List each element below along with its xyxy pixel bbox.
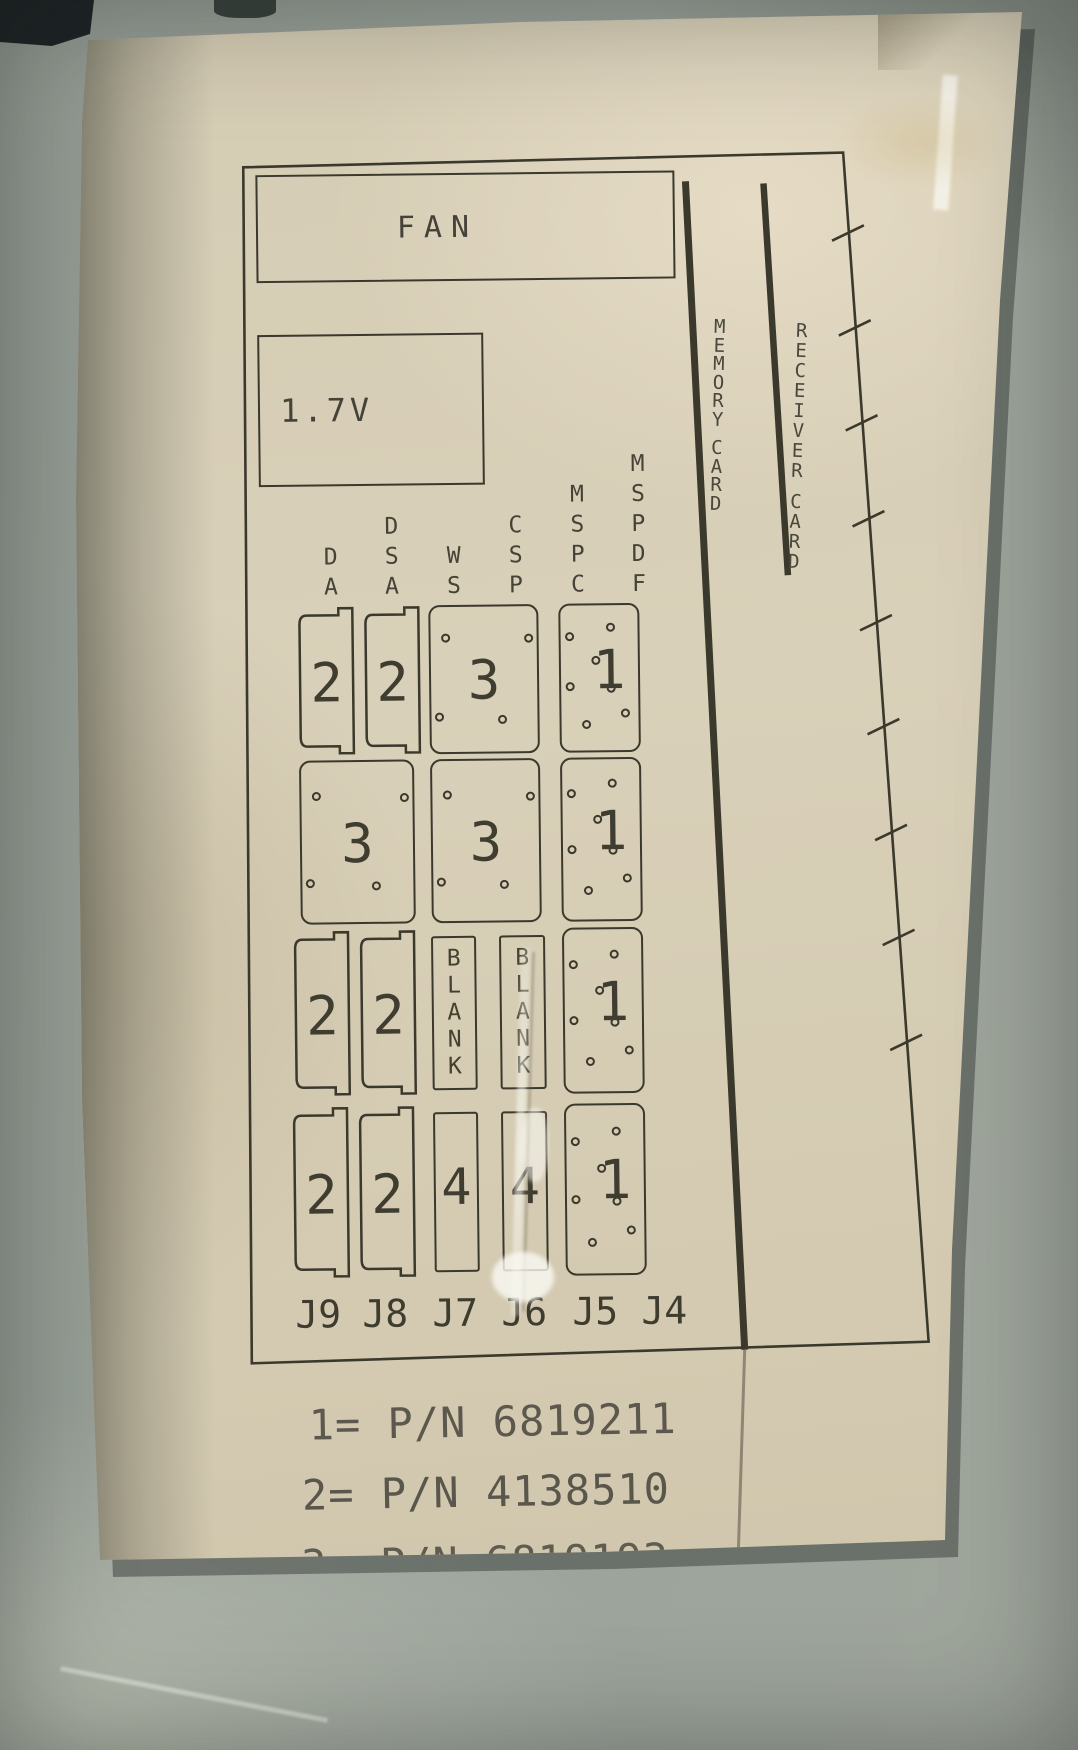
card-slot-J9-row4: 2 (292, 1106, 351, 1279)
slot-part-key: 1 (594, 804, 627, 858)
pin-dot (442, 791, 451, 800)
slot-part-key: 4 (441, 1162, 472, 1212)
stacked-letter: A (379, 572, 405, 602)
card-slot-J8-row1: 2 (363, 605, 422, 755)
pin-dot (498, 715, 507, 724)
stacked-letter: R (790, 321, 813, 342)
stacked-letter: M (709, 318, 731, 337)
pin-dot (621, 709, 630, 718)
memory-card-label: MEMORYCARD (704, 318, 731, 514)
stacked-letter: R (786, 461, 809, 482)
slot-part-key: 3 (468, 653, 501, 707)
paper-stain (830, 95, 1010, 190)
pin-dot (588, 1238, 597, 1247)
stacked-letter: M (708, 355, 730, 374)
stacked-letter: E (788, 381, 811, 402)
pin-dot (565, 683, 574, 692)
stacked-letter: A (447, 999, 461, 1026)
pin-dot (606, 622, 615, 631)
slot-part-key: 2 (306, 990, 339, 1044)
pin-dot (626, 1226, 635, 1235)
slot-part-key: 2 (372, 989, 405, 1043)
legend-line-1: 1= P/N 6819211 (308, 1398, 677, 1447)
stacked-letter: D (625, 539, 651, 569)
stacked-letter: W (441, 541, 467, 571)
pin-dot (435, 712, 444, 721)
stacked-letter: S (441, 571, 467, 601)
photo-background: FAN 1.7V MEMORYCARD RECEIVERCARD DADSAWS… (0, 0, 1078, 1750)
slot-part-key: 1 (596, 975, 629, 1029)
pin-dot (611, 1126, 620, 1135)
stacked-letter: N (448, 1026, 462, 1053)
stacked-letter: M (564, 479, 590, 509)
column-labels: DADSAWSCSPMSPCMSPDF (0, 0, 1069, 6)
stacked-letter: S (564, 509, 590, 539)
pin-dot (372, 882, 381, 891)
stacked-letter: C (789, 361, 812, 382)
legend-line-2: 2= P/N 4138510 (302, 1468, 671, 1517)
stacked-letter: S (503, 540, 529, 570)
paper-fold (878, 10, 978, 70)
stacked-letter: R (707, 392, 729, 411)
card-slot-J7J6-row2: 3 (430, 758, 542, 923)
pin-dot (441, 633, 450, 642)
pin-dot (524, 634, 533, 643)
connector-label-J5: J5 (572, 1289, 618, 1334)
card-slot-J7-row3: BLANK (431, 936, 478, 1091)
connector-label-J7: J7 (432, 1291, 478, 1336)
column-label-WS: WS (441, 541, 468, 601)
stacked-letter: S (625, 479, 651, 509)
stacked-letter: B (447, 945, 461, 972)
stacked-letter: D (318, 542, 344, 572)
pin-dot (400, 793, 409, 802)
pin-dot (312, 792, 321, 801)
connector-labels: J9J8J7J6J5J4 (0, 0, 1069, 6)
pin-dot (586, 1057, 595, 1066)
voltage-box: 1.7V (257, 333, 485, 488)
stacked-letter: C (785, 492, 808, 513)
slot-part-key: 2 (376, 656, 409, 710)
stacked-letter: Y (706, 410, 728, 429)
paper-tear (492, 1252, 554, 1302)
connector-label-J9: J9 (295, 1292, 341, 1337)
card-slot-J8-row4: 2 (358, 1105, 417, 1278)
stacked-letter: M (624, 449, 650, 479)
stacked-letter: P (565, 539, 591, 569)
stacked-letter: I (788, 401, 811, 422)
pin-dot (624, 1045, 633, 1054)
stacked-letter: A (784, 512, 807, 533)
stacked-letter: D (704, 494, 726, 513)
stacked-letter: S (379, 542, 405, 572)
stacked-letter: C (502, 510, 528, 540)
card-slot-J9J8-row2: 3 (299, 759, 416, 924)
column-label-DA: DA (318, 542, 345, 602)
card-slot-J5J4-row1: 1 (558, 603, 641, 753)
card-slot-J5J4-row4: 1 (564, 1103, 647, 1276)
slot-part-key: 2 (310, 657, 343, 711)
shadow-notch (214, 0, 276, 18)
pin-dot (622, 874, 631, 883)
pin-dot (567, 789, 576, 798)
stacked-letter: K (448, 1053, 462, 1080)
dark-object-top-left (0, 0, 96, 48)
card-slot-J5J4-row2: 1 (560, 757, 643, 922)
pin-dot (584, 886, 593, 895)
stacked-letter: C (565, 569, 591, 599)
column-label-MSPDF: MSPDF (624, 449, 652, 599)
card-slot-J9-row1: 2 (297, 606, 356, 756)
slot-part-key: 2 (305, 1169, 338, 1223)
column-label-CSP: CSP (502, 510, 529, 600)
stacked-letter: R (783, 532, 806, 553)
paper-sheet: FAN 1.7V MEMORYCARD RECEIVERCARD DADSAWS… (0, 0, 1078, 1750)
paper-smudge (552, 1595, 687, 1650)
card-grid: 223133122BLANKBLANK122441 (0, 0, 1069, 6)
stacked-letter: P (503, 570, 529, 600)
paper-fold-line (736, 1350, 747, 1560)
column-label-DSA: DSA (378, 512, 405, 602)
surface-scratch (60, 1666, 328, 1723)
stacked-letter: E (790, 341, 813, 362)
fan-box: FAN (255, 170, 675, 283)
paper-tear (522, 1108, 548, 1182)
card-slot-J5J4-row3: 1 (562, 927, 645, 1094)
pin-dot (526, 791, 535, 800)
pin-dot (609, 949, 618, 958)
legend-line-4: 4= P/N 6369779 (301, 1607, 670, 1656)
stacked-letter: P (625, 509, 651, 539)
card-slot-J8-row3: 2 (359, 929, 418, 1096)
printed-diagram: FAN 1.7V MEMORYCARD RECEIVERCARD DADSAWS… (0, 0, 1078, 1750)
pin-dot (608, 779, 617, 788)
card-slot-J9-row3: 2 (293, 930, 352, 1097)
column-label-MSPC: MSPC (564, 479, 591, 599)
connector-label-J4: J4 (641, 1288, 687, 1333)
pin-dot (567, 845, 576, 854)
pin-dot (569, 960, 578, 969)
pin-dot (569, 1016, 578, 1025)
stacked-letter: V (787, 421, 810, 442)
slot-part-key: 3 (341, 817, 374, 871)
pin-dot (582, 720, 591, 729)
pin-dot (571, 1137, 580, 1146)
voltage-label: 1.7V (280, 391, 373, 430)
stacked-letter: L (447, 972, 461, 999)
slot-part-key: 1 (598, 1153, 631, 1207)
stacked-letter: D (783, 551, 806, 572)
slot-part-key: 2 (371, 1168, 404, 1222)
pin-dot (571, 1195, 580, 1204)
pin-dot (306, 879, 315, 888)
card-slot-J7J6-row1: 3 (428, 604, 540, 754)
slot-label-blank: BLANK (447, 945, 462, 1080)
slot-part-key: 3 (469, 815, 502, 869)
stacked-letter: F (626, 569, 652, 599)
stacked-letter: D (378, 512, 404, 542)
slot-part-key: 1 (593, 643, 626, 697)
stacked-letter: A (318, 572, 344, 602)
pin-dot (437, 878, 446, 887)
pin-dot (499, 880, 508, 889)
stacked-letter: E (786, 441, 809, 462)
pin-dot (565, 632, 574, 641)
connector-label-J8: J8 (362, 1292, 408, 1337)
fan-label: FAN (397, 209, 479, 245)
card-slot-J7-row4: 4 (433, 1112, 480, 1273)
